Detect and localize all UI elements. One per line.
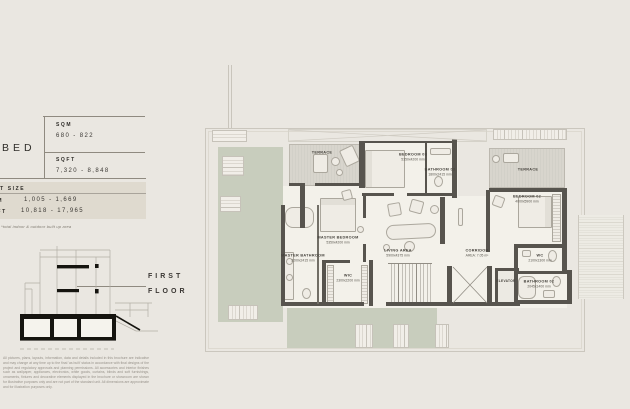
wall: [315, 183, 362, 186]
site-line-2: [231, 65, 232, 128]
room-label-bathroom-02: BATHROOM 02 2045x1400 mm: [524, 279, 555, 288]
room-label-master-bathroom: MASTER BATHROOM 3200x2415 mm: [281, 253, 325, 262]
room-label-bathroom-03: BATHROOM 03 1800x2415 mm: [425, 167, 456, 176]
wall: [363, 196, 366, 218]
elevator-cab: [498, 271, 514, 302]
wall: [514, 300, 572, 304]
wall: [440, 197, 445, 244]
louver-detail-terrace2: [493, 129, 567, 140]
louver-detail-top: [212, 130, 247, 142]
wall: [289, 183, 302, 186]
furniture-vanity: [430, 148, 451, 155]
furniture-bed-pillows: [321, 199, 355, 205]
staircase: [388, 263, 432, 304]
room-label-terrace-2: TERRACE: [518, 168, 538, 173]
wall: [386, 302, 442, 306]
wall: [362, 193, 394, 196]
wall: [427, 193, 455, 196]
furniture-toilet: [434, 176, 443, 187]
furniture-vanity: [543, 290, 555, 298]
room-label-master-bedroom: MASTER BEDROOM 5350x4200 mm: [317, 235, 358, 244]
floor-plan: TERRACE BEDROOM 03 5350x4200 mm BATHROOM…: [0, 0, 630, 409]
room-label-wic: WIC 2300x2200 mm: [336, 273, 359, 282]
wall: [369, 260, 373, 306]
room-label-living-area: LIVING AREA 5900x4375 mm: [384, 248, 412, 257]
wall: [447, 266, 452, 305]
wall: [518, 244, 567, 248]
furniture-closet: [327, 265, 334, 304]
furniture-bed-pillows: [545, 197, 551, 227]
site-line-1: [228, 65, 229, 128]
room-label-elevator: ELEVATOR: [496, 279, 515, 283]
furniture-lounge-chair: [313, 154, 328, 173]
furniture-pouf: [357, 226, 364, 233]
wall: [442, 302, 520, 306]
furniture-bed-pillows: [366, 151, 372, 187]
wall: [567, 270, 572, 304]
wall: [514, 244, 518, 306]
room-label-wc: WC 2100x1300 mm: [528, 253, 551, 262]
wall: [487, 266, 492, 305]
wall: [518, 271, 567, 274]
louver-detail-3: [228, 305, 258, 320]
furniture-plant: [492, 155, 500, 163]
wall: [486, 190, 490, 252]
room-label-bedroom-03: BEDROOM 03 5350x4200 mm: [399, 152, 427, 161]
louver-detail-4: [355, 324, 373, 348]
wall: [362, 141, 455, 143]
wall: [562, 244, 567, 272]
disclaimer-text: All pictures, plans, layouts, informatio…: [3, 356, 149, 390]
furniture-sink: [286, 274, 293, 281]
wall: [495, 268, 519, 271]
furniture-plant: [430, 205, 439, 214]
furniture-toilet: [302, 288, 311, 299]
louver-detail-5: [393, 324, 409, 348]
wall: [322, 260, 326, 306]
furniture-table: [331, 157, 340, 166]
wall: [363, 244, 366, 262]
wall: [495, 268, 498, 304]
wall: [562, 188, 567, 246]
wall: [359, 141, 365, 188]
furniture-console: [458, 208, 463, 226]
louver-detail-2: [220, 196, 241, 212]
room-label-terrace-1: TERRACE: [312, 151, 332, 156]
furniture-lounge: [503, 153, 519, 163]
wall: [407, 193, 425, 196]
furniture-pouf: [336, 169, 343, 176]
furniture-armchair: [387, 202, 402, 217]
louver-detail-1: [222, 156, 244, 176]
louver-detail-6: [435, 324, 449, 348]
wall: [489, 188, 567, 192]
furniture-sofa: [386, 223, 437, 241]
room-label-corridor: CORRIDOR AREA: 7.05 m²: [465, 248, 488, 257]
pergola-right: [578, 215, 624, 299]
room-label-bedroom-02: BEDROOM 02 4000x5900 mm: [513, 194, 541, 203]
furniture-wardrobe: [552, 194, 561, 242]
furniture-closet: [361, 265, 368, 304]
wall: [300, 183, 305, 228]
wall: [322, 260, 350, 263]
